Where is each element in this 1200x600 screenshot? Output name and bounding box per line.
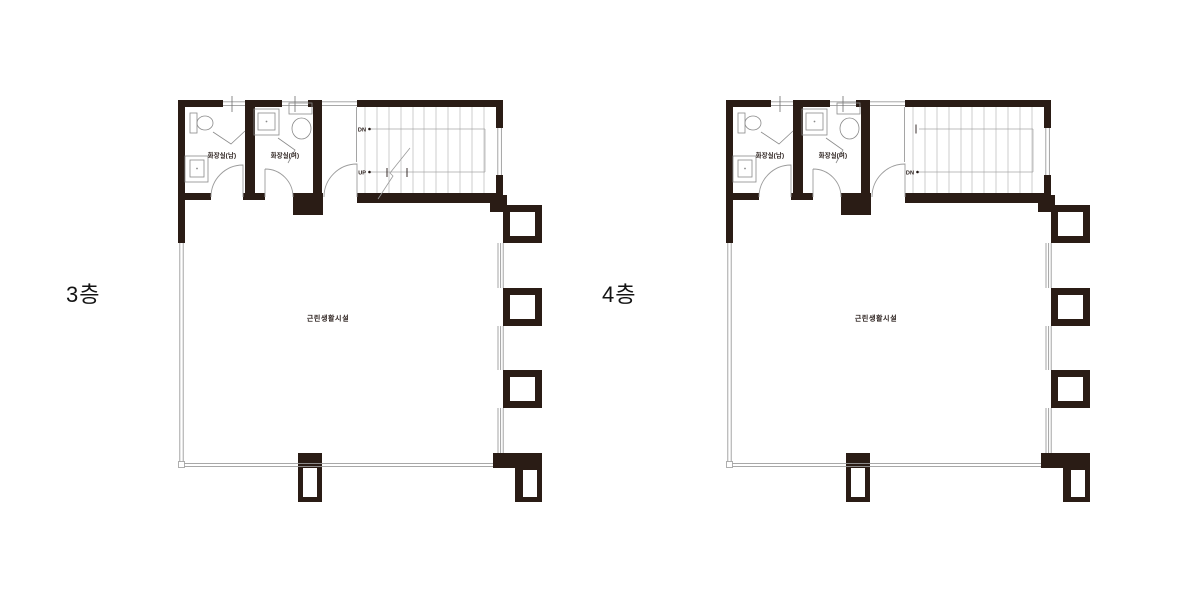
floor-plan-3f: 화장실(남) 화장실(여) 근린생활시설 DN UP — [178, 94, 546, 506]
stair-break-line — [378, 148, 410, 199]
room-label: 근린생활시설 — [307, 314, 349, 323]
toilet-men-label: 화장실(남) — [208, 151, 237, 160]
floor-label-3f: 3층 — [66, 282, 100, 308]
toilet-women-label: 화장실(여) — [819, 151, 848, 160]
floor-label-4f: 4층 — [602, 282, 636, 308]
stair-dn-label: DN — [906, 171, 914, 177]
stair-dn-dot — [368, 128, 371, 131]
floor-plan-sheet: 3층 4층 화장실(남) 화장실(여) 근린생활시설 DN UP 화장실(남) … — [0, 0, 1200, 600]
toilet-men-label: 화장실(남) — [756, 151, 785, 160]
room-label: 근린생활시설 — [855, 314, 897, 323]
toilet-women-label: 화장실(여) — [271, 151, 300, 160]
stair-up-label: UP — [358, 171, 366, 177]
floor-plan-4f: 화장실(남) 화장실(여) 근린생활시설 DN — [726, 94, 1094, 506]
plan-3f-annotations: 화장실(남) 화장실(여) 근린생활시설 DN UP — [208, 128, 410, 323]
plan-4f-annotations: 화장실(남) 화장실(여) 근린생활시설 DN — [756, 125, 919, 323]
stair-dn-label: DN — [358, 128, 366, 134]
stair-dn-dot — [916, 171, 919, 174]
stair-up-dot — [368, 171, 371, 174]
